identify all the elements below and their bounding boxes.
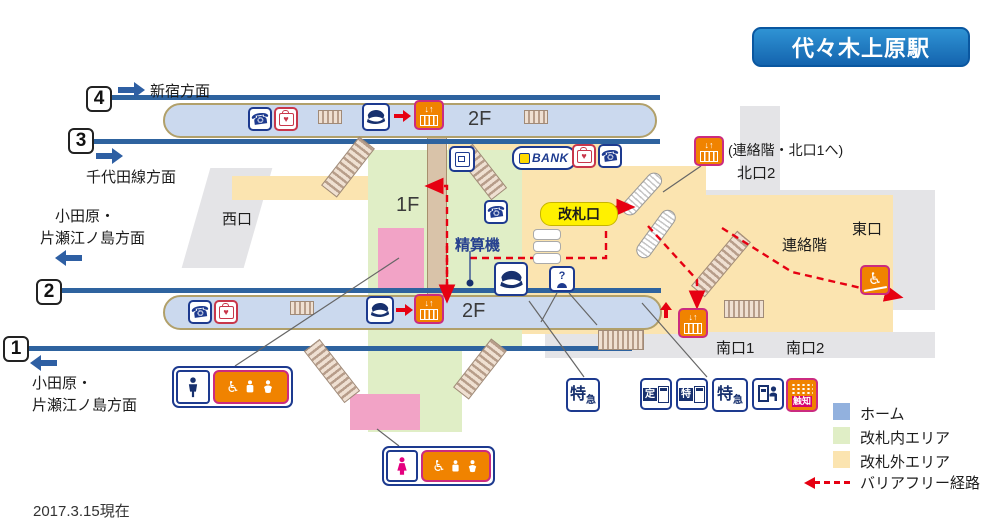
legend-swatch-platform xyxy=(833,403,850,420)
elevator-icon-north: ↓↑ xyxy=(694,136,724,166)
fare-adjustment-label: 精算機 xyxy=(455,234,500,255)
floor-label-2f-upper: 2F xyxy=(468,108,491,131)
intercom-icon: ? xyxy=(549,266,575,292)
direction-odawara-line1: 小田原・ xyxy=(32,372,92,393)
legend-label-outside: 改札外エリア xyxy=(860,451,950,472)
north-elevator-note: (連絡階・北口1へ) xyxy=(728,140,843,160)
toilet-group-womens: ♿ xyxy=(382,446,495,486)
exit-west: 西口 xyxy=(222,208,252,229)
ticket-machine-attendant-icon xyxy=(752,378,784,410)
limited-express-counter-icon: 特急 xyxy=(566,378,600,412)
exit-east: 東口 xyxy=(852,218,882,239)
phone-icon: ☎ xyxy=(598,144,622,168)
mens-toilet-icon xyxy=(176,370,210,404)
pointer-line xyxy=(529,301,584,377)
platform-number-3: 3 xyxy=(68,128,94,154)
platform-number-4: 4 xyxy=(86,86,112,112)
tactile-map-icon: 触知 xyxy=(786,378,818,412)
aed-icon: ♥ xyxy=(214,300,238,324)
exit-north2: 北口2 xyxy=(737,162,775,183)
ltd-express-ticket-machine-icon: 特 xyxy=(676,378,708,410)
tactile-dots xyxy=(791,383,813,395)
barrier-free-route xyxy=(428,186,447,298)
legend-route-arrow xyxy=(804,477,850,489)
ticket-gate-label: 改札口 xyxy=(540,202,618,226)
aed-icon: ♥ xyxy=(274,107,298,131)
pointer-line xyxy=(569,293,597,325)
aed-icon: ♥ xyxy=(572,144,596,168)
fare-machine-dot xyxy=(467,280,474,287)
ticket-gate-slot xyxy=(533,253,561,264)
direction-shinjuku: 新宿方面 xyxy=(150,80,210,101)
commuter-pass-machine-icon: 定 xyxy=(640,378,672,410)
exit-south1: 南口1 xyxy=(716,337,754,358)
station-office-icon xyxy=(366,296,394,324)
phone-icon: ☎ xyxy=(248,107,272,131)
legend-label-platform: ホーム xyxy=(860,403,905,424)
legend-label-inside: 改札内エリア xyxy=(860,427,950,448)
legend-swatch-inside xyxy=(833,427,850,444)
renraku-floor: 連絡階 xyxy=(782,234,827,255)
pointer-line xyxy=(663,166,701,192)
barrier-free-route xyxy=(648,226,697,306)
womens-toilet-icon xyxy=(386,450,418,482)
phone-icon: ☎ xyxy=(484,200,508,224)
phone-icon: ☎ xyxy=(188,300,212,324)
toilet-group-mens: ♿ xyxy=(172,366,293,408)
elevator-icon: ↓↑ xyxy=(414,100,444,130)
direction-odawara-line2: 片瀬江ノ島方面 xyxy=(32,394,137,415)
elevator-icon: ↓↑ xyxy=(414,294,444,324)
multifunction-toilet-icon: ♿ xyxy=(213,370,289,404)
direction-odawara-line1: 小田原・ xyxy=(55,205,115,226)
elevator-icon-south: ↓↑ xyxy=(678,308,708,338)
direction-chiyoda: 千代田線方面 xyxy=(86,166,176,187)
ticket-gate-slot xyxy=(533,229,561,240)
exit-south2: 南口2 xyxy=(786,337,824,358)
floor-label-2f-lower: 2F xyxy=(462,300,485,323)
station-office-icon xyxy=(362,103,390,131)
pointer-line xyxy=(377,429,399,446)
pointer-line xyxy=(541,293,557,322)
limited-express-counter-icon: 特急 xyxy=(712,378,748,412)
platform-number-2: 2 xyxy=(36,279,62,305)
legend-swatch-outside xyxy=(833,451,850,468)
multifunction-toilet-icon: ♿ xyxy=(421,450,491,482)
station-map: 代々木上原駅 2017.3.15現在 4 新宿方面 3 千代田線方面 2 小田原… xyxy=(0,0,1000,525)
legend-label-route: バリアフリー経路 xyxy=(860,472,980,493)
direction-odawara-line2: 片瀬江ノ島方面 xyxy=(40,227,145,248)
ticket-gate-slot xyxy=(533,241,561,252)
wheelchair-ramp-icon: ♿ xyxy=(860,265,890,295)
atm-bank-logo: BANK xyxy=(512,146,576,170)
station-title: 代々木上原駅 xyxy=(752,27,970,67)
updated-date: 2017.3.15現在 xyxy=(33,500,130,521)
coin-locker-icon xyxy=(449,146,475,172)
platform-number-1: 1 xyxy=(3,336,29,362)
floor-label-1f: 1F xyxy=(396,194,419,217)
station-office-icon xyxy=(494,262,528,296)
bank-stamp-icon xyxy=(519,153,530,164)
